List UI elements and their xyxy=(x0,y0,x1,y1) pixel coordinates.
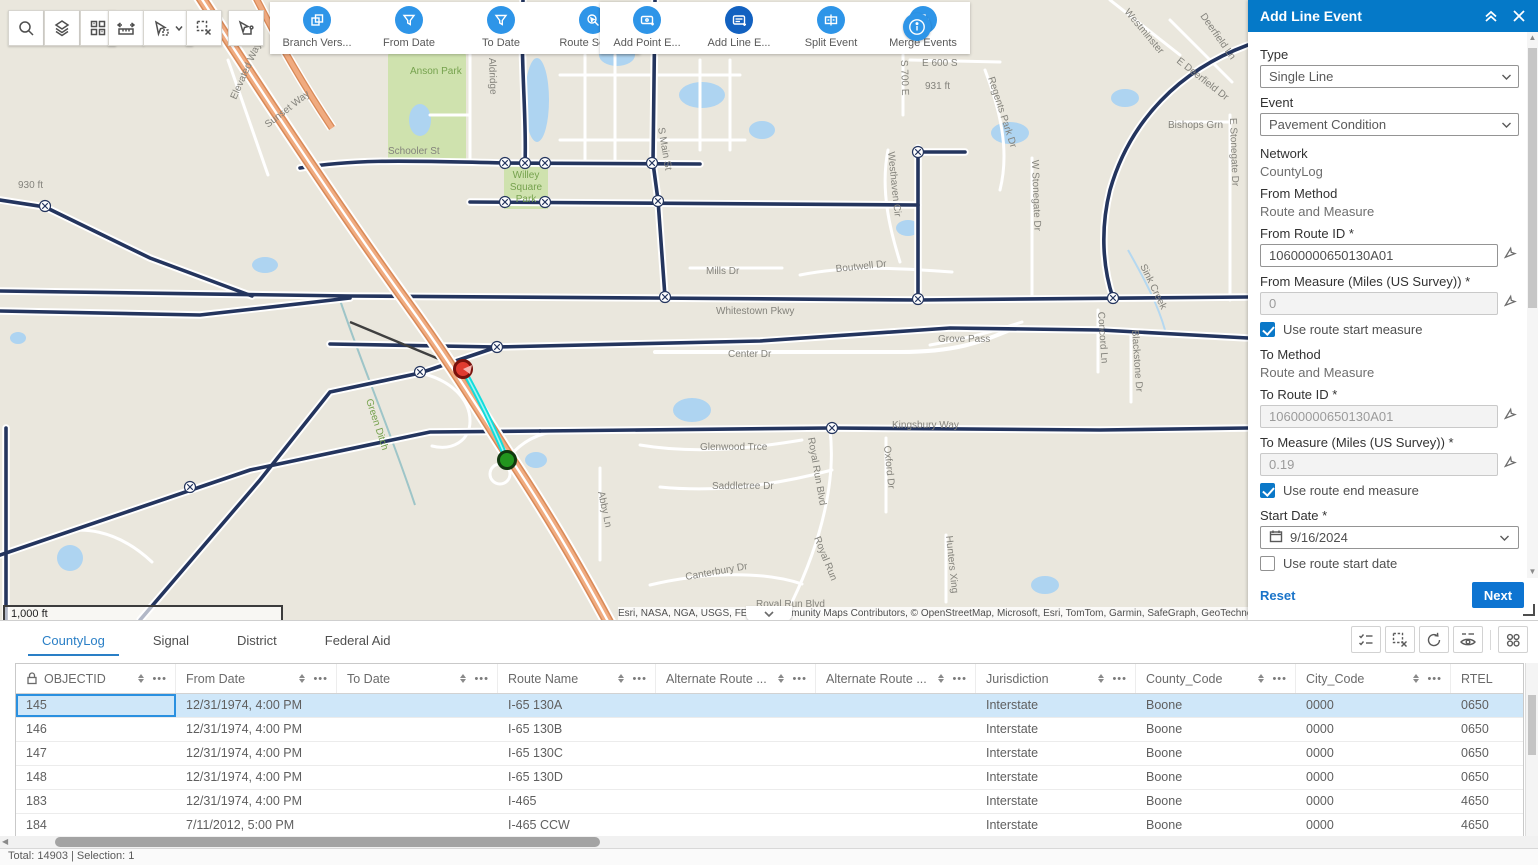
column-header[interactable]: City_Code••• xyxy=(1296,664,1451,693)
intersection-marker xyxy=(660,292,671,303)
from-route-id-input[interactable] xyxy=(1260,244,1498,267)
intersection-marker xyxy=(827,423,838,434)
column-menu-icon[interactable]: ••• xyxy=(1112,673,1127,685)
table-row[interactable]: 14812/31/1974, 4:00 PMI-65 130DInterstat… xyxy=(16,766,1523,790)
table-cell[interactable]: Interstate xyxy=(976,694,1136,717)
magnifier-icon xyxy=(17,19,35,37)
table-cell[interactable]: Interstate xyxy=(976,814,1136,836)
table-cell[interactable]: I-65 130D xyxy=(498,766,656,789)
intersection-marker xyxy=(540,197,551,208)
from-measure-input[interactable] xyxy=(1260,292,1498,315)
info-icon xyxy=(908,18,926,36)
scroll-up-arrow[interactable]: ▲ xyxy=(1527,32,1538,44)
map-label: Abby Ln xyxy=(595,490,613,528)
map-label: Saddletree Dr xyxy=(712,481,774,492)
map-routes xyxy=(0,0,1248,620)
map-label: Kingsbury Way xyxy=(892,420,959,431)
table-header-row: OBJECTID•••From Date•••To Date•••Route N… xyxy=(16,664,1523,694)
map-water xyxy=(10,44,1139,594)
column-header[interactable]: Route Name••• xyxy=(498,664,656,693)
table-row[interactable]: 14512/31/1974, 4:00 PMI-65 130AInterstat… xyxy=(16,694,1523,718)
collapse-panel-button[interactable] xyxy=(1482,7,1500,25)
eye-columns-icon xyxy=(1459,631,1477,649)
reset-link[interactable]: Reset xyxy=(1260,588,1472,603)
table-cell[interactable]: 184 xyxy=(16,814,176,836)
map-label: Center Dr xyxy=(728,349,772,360)
event-end-marker xyxy=(499,452,516,469)
scroll-left-arrow[interactable]: ◀ xyxy=(2,836,8,848)
network-label: Network xyxy=(1260,146,1519,161)
map-label: Willey xyxy=(513,170,540,181)
panel-scrollbar[interactable]: ▲ ▼ xyxy=(1527,32,1538,578)
to-route-id-label: To Route ID * xyxy=(1260,387,1519,402)
table-cell[interactable]: 0650 xyxy=(1451,742,1524,765)
table-cell[interactable]: 0000 xyxy=(1296,766,1451,789)
layers-button[interactable] xyxy=(44,10,80,46)
from-measure-label: From Measure (Miles (US Survey)) * xyxy=(1260,274,1519,289)
table-cell[interactable]: Boone xyxy=(1136,742,1296,765)
table-cell[interactable]: 0000 xyxy=(1296,718,1451,741)
table-cell[interactable]: I-465 CCW xyxy=(498,814,656,836)
table-cell[interactable] xyxy=(656,814,816,836)
column-header-label: Route Name xyxy=(508,672,578,686)
from-date-filter-button[interactable]: From Date xyxy=(372,6,446,49)
intersection-marker xyxy=(415,367,426,378)
pick-on-map-icon[interactable] xyxy=(1504,246,1519,266)
from-method-label: From Method xyxy=(1260,186,1519,201)
table-cell[interactable]: Boone xyxy=(1136,814,1296,836)
hide-columns-button[interactable] xyxy=(1453,626,1483,653)
column-header[interactable]: To Date••• xyxy=(337,664,498,693)
map-label: Aldridge xyxy=(486,58,498,95)
refresh-icon xyxy=(1425,631,1443,649)
intersection-marker xyxy=(40,201,51,212)
filter-icon xyxy=(493,12,509,28)
map-label: E 600 S xyxy=(922,58,958,69)
double-chevron-up-icon xyxy=(1483,8,1499,24)
panel-title: Add Line Event xyxy=(1260,8,1472,24)
intersection-marker xyxy=(647,158,658,169)
map-label: S 700 E xyxy=(898,60,910,96)
column-header-label: RTEL xyxy=(1461,672,1493,686)
panel-resize-handle[interactable] xyxy=(1523,604,1535,616)
table-horizontal-scrollbar[interactable]: ◀ xyxy=(0,836,1538,848)
intersection-marker xyxy=(520,158,531,169)
next-button[interactable]: Next xyxy=(1472,582,1524,608)
table-vertical-scrollbar[interactable] xyxy=(1525,663,1538,836)
search-button[interactable] xyxy=(8,10,44,46)
checkbox-label: Use route start date xyxy=(1283,556,1397,571)
table-cell[interactable]: 148 xyxy=(16,766,176,789)
column-header[interactable]: RTEL xyxy=(1451,664,1524,693)
show-selected-records-button[interactable] xyxy=(1351,626,1381,653)
table-row[interactable]: 1847/11/2012, 5:00 PMI-465 CCWInterstate… xyxy=(16,814,1523,836)
start-date-value: 9/16/2024 xyxy=(1290,530,1492,545)
split-event-button[interactable]: Split Event xyxy=(794,6,868,49)
clear-table-selection-button[interactable] xyxy=(1385,626,1415,653)
attribute-table: OBJECTID•••From Date•••To Date•••Route N… xyxy=(15,663,1524,836)
event-label: Event xyxy=(1260,95,1519,110)
table-status-bar: Total: 14903 | Selection: 1 xyxy=(0,848,1538,865)
intersection-marker xyxy=(540,158,551,169)
column-menu-icon[interactable]: ••• xyxy=(952,673,967,685)
map-attribution: Esri, NASA, NGA, USGS, FEMA | Community … xyxy=(618,607,1248,620)
sort-icon[interactable] xyxy=(138,674,144,683)
table-cell[interactable]: 12/31/1974, 4:00 PM xyxy=(176,718,337,741)
table-cell[interactable] xyxy=(816,742,976,765)
tab-signal[interactable]: Signal xyxy=(151,624,191,656)
to-method-value: Route and Measure xyxy=(1260,365,1519,380)
column-header[interactable]: Alternate Route ...••• xyxy=(816,664,976,693)
table-cell[interactable] xyxy=(337,718,498,741)
measure-icon xyxy=(117,19,135,37)
column-header-label: County_Code xyxy=(1146,672,1222,686)
layers-icon xyxy=(53,19,71,37)
tool-label: Branch Vers... xyxy=(282,37,351,49)
table-cell[interactable]: Interstate xyxy=(976,790,1136,813)
sort-icon[interactable] xyxy=(1413,674,1419,683)
map-label: Schooler St xyxy=(388,146,440,157)
tool-label: Add Point E... xyxy=(613,37,680,49)
map-label: Park xyxy=(516,194,538,205)
use-route-start-measure-checkbox[interactable] xyxy=(1260,322,1275,337)
map-label: Royal Run xyxy=(811,535,839,582)
table-cell[interactable] xyxy=(816,790,976,813)
table-cell[interactable] xyxy=(816,766,976,789)
table-cell[interactable]: 12/31/1974, 4:00 PM xyxy=(176,766,337,789)
to-measure-label: To Measure (Miles (US Survey)) * xyxy=(1260,435,1519,450)
table-cell[interactable]: 146 xyxy=(16,718,176,741)
scrollbar-thumb[interactable] xyxy=(55,837,600,847)
filter-tools-group: Branch Vers... From Date To Date Route S… xyxy=(270,2,640,54)
start-date-label: Start Date * xyxy=(1260,508,1519,523)
table-toolbar xyxy=(1351,626,1528,653)
column-header-label: Jurisdiction xyxy=(986,672,1049,686)
select-pointer-icon xyxy=(152,19,170,37)
table-cell[interactable]: 0650 xyxy=(1451,694,1524,717)
table-cell[interactable]: 0000 xyxy=(1296,694,1451,717)
scroll-down-arrow[interactable]: ▼ xyxy=(1527,566,1538,578)
map-label: Bishops Grn xyxy=(1168,120,1223,131)
table-cell[interactable] xyxy=(816,814,976,836)
panel-footer: Reset Next xyxy=(1248,578,1538,620)
table-cell[interactable] xyxy=(656,790,816,813)
add-line-event-button[interactable]: Add Line E... xyxy=(702,6,776,49)
event-select-value: Pavement Condition xyxy=(1269,117,1501,132)
route-search-icon xyxy=(585,12,601,28)
table-cell[interactable]: 12/31/1974, 4:00 PM xyxy=(176,790,337,813)
map-label: Whitestown Pkwy xyxy=(716,306,794,317)
sort-icon[interactable] xyxy=(618,674,624,683)
table-cell[interactable] xyxy=(337,742,498,765)
sort-icon[interactable] xyxy=(778,674,784,683)
network-value: CountyLog xyxy=(1260,164,1519,179)
event-editor-window: Elevated WaySunset WayAnson ParkAldridge… xyxy=(0,0,1538,865)
sort-icon[interactable] xyxy=(938,674,944,683)
use-route-start-date-row[interactable]: Use route start date xyxy=(1260,556,1519,571)
chevron-down-icon xyxy=(763,610,775,618)
clear-selection-button[interactable] xyxy=(186,10,222,46)
use-route-start-measure-row[interactable]: Use route start measure xyxy=(1260,322,1519,337)
add-point-event-icon xyxy=(639,12,655,28)
route-pointer-icon xyxy=(237,19,255,37)
start-date-input[interactable]: 9/16/2024 xyxy=(1260,526,1519,549)
table-cell[interactable] xyxy=(656,742,816,765)
column-menu-icon[interactable]: ••• xyxy=(1272,673,1287,685)
from-route-id-label: From Route ID * xyxy=(1260,226,1519,241)
table-cell[interactable] xyxy=(337,766,498,789)
intersection-marker xyxy=(913,147,924,158)
table-cell[interactable]: Boone xyxy=(1136,790,1296,813)
scrollbar-thumb[interactable] xyxy=(1528,695,1536,755)
table-cell[interactable]: 0650 xyxy=(1451,718,1524,741)
split-event-icon xyxy=(823,12,839,28)
intersection-marker xyxy=(500,197,511,208)
column-header-label: City_Code xyxy=(1306,672,1364,686)
collapse-attribution-tab[interactable] xyxy=(746,606,792,620)
selected-event-segment xyxy=(455,361,516,469)
table-cell[interactable]: 145 xyxy=(16,694,176,717)
table-cell[interactable]: 7/11/2012, 5:00 PM xyxy=(176,814,337,836)
column-header[interactable]: Jurisdiction••• xyxy=(976,664,1136,693)
calendar-icon xyxy=(1269,529,1283,546)
table-cell[interactable]: Boone xyxy=(1136,766,1296,789)
table-cell[interactable] xyxy=(656,694,816,717)
table-cell[interactable] xyxy=(337,814,498,836)
table-cell[interactable] xyxy=(337,790,498,813)
close-panel-button[interactable] xyxy=(1510,7,1528,25)
to-date-filter-button[interactable]: To Date xyxy=(464,6,538,49)
to-measure-input[interactable] xyxy=(1260,453,1498,476)
to-method-label: To Method xyxy=(1260,347,1519,362)
record-count: Total: 14903 | Selection: 1 xyxy=(8,850,134,862)
table-cell[interactable]: 183 xyxy=(16,790,176,813)
table-cell[interactable]: Boone xyxy=(1136,718,1296,741)
column-header-label: To Date xyxy=(347,672,390,686)
column-header-label: Alternate Route ... xyxy=(826,672,927,686)
tool-label: From Date xyxy=(383,37,435,49)
table-cell[interactable]: 147 xyxy=(16,742,176,765)
checklist-icon xyxy=(1357,631,1375,649)
tab-countylog[interactable]: CountyLog xyxy=(40,624,107,656)
column-menu-icon[interactable]: ••• xyxy=(152,673,167,685)
measure-button[interactable] xyxy=(108,10,144,46)
intersection-marker xyxy=(185,482,196,493)
map-canvas[interactable]: Elevated WaySunset WayAnson ParkAldridge… xyxy=(0,0,1248,620)
scrollbar-thumb[interactable] xyxy=(1528,48,1537,308)
basemap-grid-icon xyxy=(89,19,107,37)
intersection-marker xyxy=(913,294,924,305)
column-menu-icon[interactable]: ••• xyxy=(474,673,489,685)
sort-icon[interactable] xyxy=(1098,674,1104,683)
column-header-label: OBJECTID xyxy=(44,672,106,686)
table-row[interactable]: 14712/31/1974, 4:00 PMI-65 130CInterstat… xyxy=(16,742,1523,766)
close-icon xyxy=(1512,9,1526,23)
map-label: Anson Park xyxy=(410,66,463,77)
add-point-event-button[interactable]: Add Point E... xyxy=(610,6,684,49)
table-cell[interactable]: 0000 xyxy=(1296,814,1451,836)
sort-icon[interactable] xyxy=(1258,674,1264,683)
table-cell[interactable]: 12/31/1974, 4:00 PM xyxy=(176,694,337,717)
branch-versions-icon xyxy=(309,12,325,28)
sort-icon[interactable] xyxy=(299,674,305,683)
event-select[interactable]: Pavement Condition xyxy=(1260,113,1519,136)
table-cell[interactable]: Interstate xyxy=(976,766,1136,789)
column-header[interactable]: OBJECTID••• xyxy=(16,664,176,693)
table-cell[interactable]: I-65 130B xyxy=(498,718,656,741)
map-label: Glenwood Trce xyxy=(700,442,768,453)
type-label: Type xyxy=(1260,47,1519,62)
map-label: Mills Dr xyxy=(706,266,740,277)
chevron-down-icon xyxy=(1501,69,1512,84)
chevron-down-icon xyxy=(1501,117,1512,132)
map-label: Canterbury Dr xyxy=(685,561,749,583)
map-routes-casing xyxy=(0,0,1248,620)
map-label: 930 ft xyxy=(18,180,43,191)
use-route-end-measure-checkbox[interactable] xyxy=(1260,483,1275,498)
table-row[interactable]: 14612/31/1974, 4:00 PMI-65 130BInterstat… xyxy=(16,718,1523,742)
table-options-button[interactable] xyxy=(1498,626,1528,653)
map-label: Sink Creek xyxy=(1137,262,1169,312)
table-cell[interactable]: 0000 xyxy=(1296,742,1451,765)
add-line-event-icon xyxy=(731,12,747,28)
table-cell[interactable]: 4650 xyxy=(1451,790,1524,813)
intersection-marker xyxy=(500,158,511,169)
apps-grid-icon xyxy=(1504,631,1522,649)
tool-label: Add Line E... xyxy=(708,37,771,49)
clear-selection-icon xyxy=(1391,631,1409,649)
map-label: Grove Pass xyxy=(938,334,990,345)
clear-selection-icon xyxy=(195,19,213,37)
table-cell[interactable]: 0650 xyxy=(1451,766,1524,789)
table-cell[interactable]: Interstate xyxy=(976,742,1136,765)
to-route-id-input[interactable] xyxy=(1260,405,1498,428)
table-cell[interactable]: I-65 130C xyxy=(498,742,656,765)
table-cell[interactable] xyxy=(816,718,976,741)
column-header[interactable]: County_Code••• xyxy=(1136,664,1296,693)
table-cell[interactable]: Interstate xyxy=(976,718,1136,741)
scale-bar: 1,000 ft xyxy=(3,605,283,620)
type-select-value: Single Line xyxy=(1269,69,1501,84)
intersection-marker xyxy=(1108,293,1119,304)
lock-icon xyxy=(26,672,38,685)
branch-versions-button[interactable]: Branch Vers... xyxy=(280,6,354,49)
type-select[interactable]: Single Line xyxy=(1260,65,1519,88)
info-button[interactable] xyxy=(903,13,931,41)
column-menu-icon[interactable]: ••• xyxy=(792,673,807,685)
route-tool-button[interactable] xyxy=(228,10,264,46)
table-cell[interactable]: I-465 xyxy=(498,790,656,813)
table-cell[interactable] xyxy=(337,694,498,717)
chevron-down-icon xyxy=(1499,530,1510,545)
sort-icon[interactable] xyxy=(460,674,466,683)
table-cell[interactable]: I-65 130A xyxy=(498,694,656,717)
column-header[interactable]: From Date••• xyxy=(176,664,337,693)
map-label: Square xyxy=(510,182,543,193)
use-route-start-date-checkbox[interactable] xyxy=(1260,556,1275,571)
checkbox-label: Use route start measure xyxy=(1283,322,1422,337)
map-label: Westminster xyxy=(1122,7,1166,57)
creek-line xyxy=(340,300,415,505)
use-route-end-measure-row[interactable]: Use route end measure xyxy=(1260,483,1519,498)
attribute-table-section: CountyLog Signal District Federal Aid OB… xyxy=(0,620,1538,865)
table-cell[interactable]: 4650 xyxy=(1451,814,1524,836)
table-cell[interactable]: 12/31/1974, 4:00 PM xyxy=(176,742,337,765)
column-header-label: From Date xyxy=(186,672,245,686)
checkbox-label: Use route end measure xyxy=(1283,483,1419,498)
tool-label: To Date xyxy=(482,37,520,49)
table-tab-bar: CountyLog Signal District Federal Aid xyxy=(0,621,1538,658)
column-menu-icon[interactable]: ••• xyxy=(1427,673,1442,685)
intersection-marker xyxy=(492,342,503,353)
map-label: Oxford Dr xyxy=(881,445,897,490)
refresh-button[interactable] xyxy=(1419,626,1449,653)
panel-header: Add Line Event xyxy=(1248,0,1538,32)
tab-federal-aid[interactable]: Federal Aid xyxy=(323,624,393,656)
intersection-marker xyxy=(653,196,664,207)
map-local-streets xyxy=(40,0,1232,612)
tab-district[interactable]: District xyxy=(235,624,279,656)
table-cell[interactable] xyxy=(656,718,816,741)
column-menu-icon[interactable]: ••• xyxy=(313,673,328,685)
divider xyxy=(1490,630,1491,650)
map-graphics: Elevated WaySunset WayAnson ParkAldridge… xyxy=(0,0,1248,620)
pick-on-map-icon[interactable] xyxy=(1504,294,1519,314)
pick-on-map-icon[interactable] xyxy=(1504,407,1519,427)
column-menu-icon[interactable]: ••• xyxy=(632,673,647,685)
route-intersection-markers xyxy=(40,147,1119,493)
chevron-down-icon xyxy=(174,23,184,33)
table-cell[interactable] xyxy=(656,766,816,789)
map-labels: Elevated WaySunset WayAnson ParkAldridge… xyxy=(18,7,1240,610)
table-body: 14512/31/1974, 4:00 PMI-65 130AInterstat… xyxy=(16,694,1523,836)
panel-body: Type Single Line Event Pavement Conditio… xyxy=(1248,32,1527,578)
tool-label: Split Event xyxy=(805,37,858,49)
table-cell[interactable]: Boone xyxy=(1136,694,1296,717)
column-header[interactable]: Alternate Route ...••• xyxy=(656,664,816,693)
column-header-label: Alternate Route ... xyxy=(666,672,767,686)
pick-on-map-icon[interactable] xyxy=(1504,455,1519,475)
filter-icon xyxy=(401,12,417,28)
table-row[interactable]: 18312/31/1974, 4:00 PMI-465InterstateBoo… xyxy=(16,790,1523,814)
map-label: 931 ft xyxy=(925,81,950,92)
map-label: Boutwell Dr xyxy=(835,259,888,275)
table-cell[interactable] xyxy=(816,694,976,717)
table-cell[interactable]: 0000 xyxy=(1296,790,1451,813)
from-method-value: Route and Measure xyxy=(1260,204,1519,219)
add-line-event-panel: Add Line Event Type Single Line Event Pa… xyxy=(1248,0,1538,620)
